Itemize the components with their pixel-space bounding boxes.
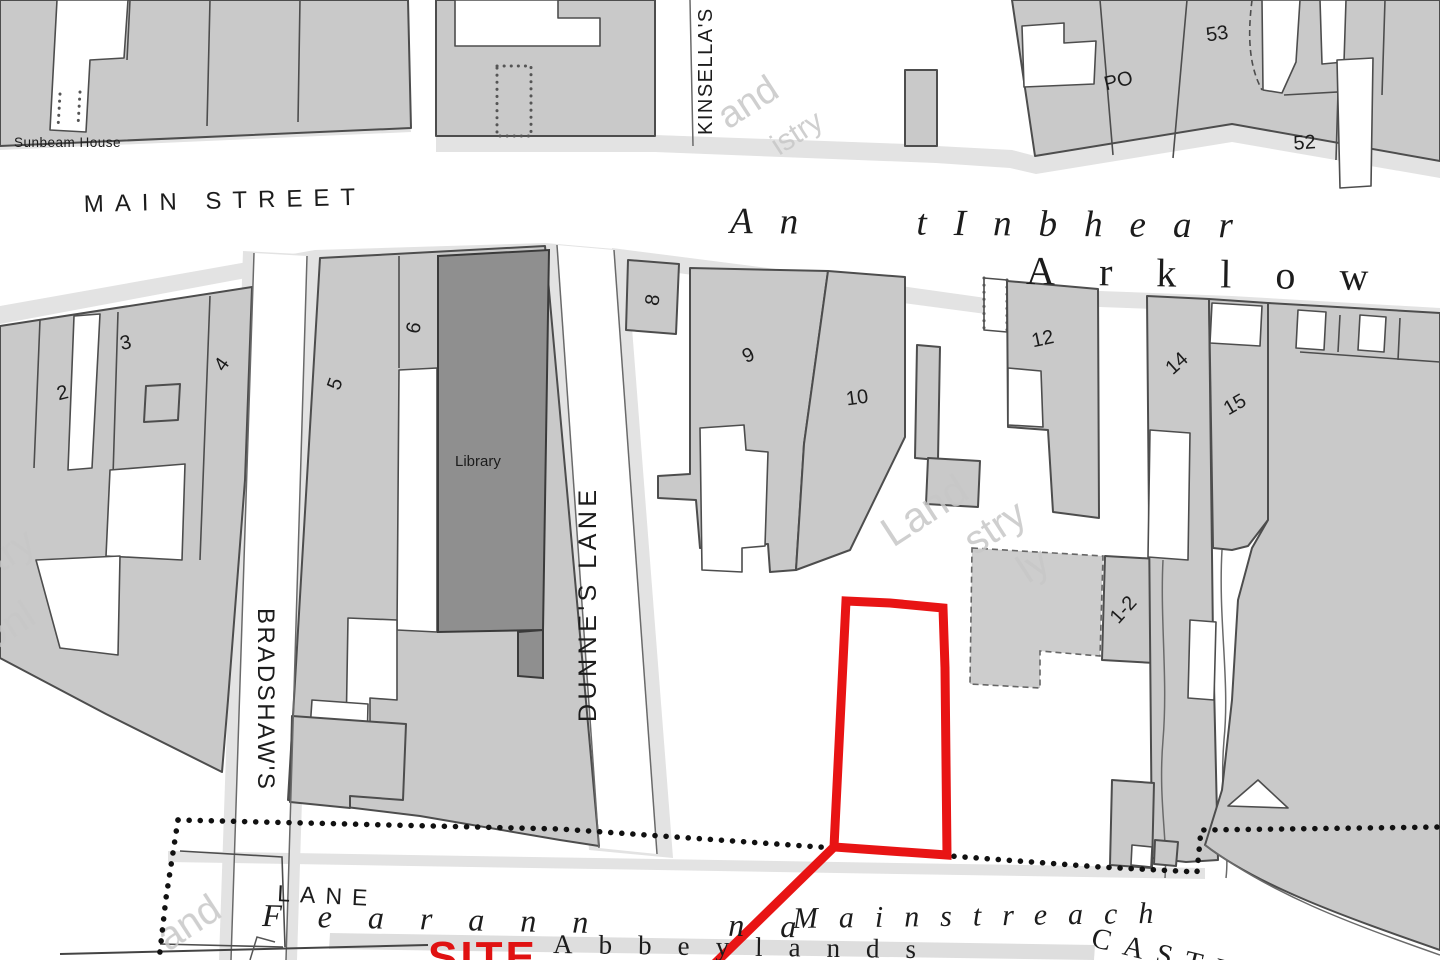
site-outline [834,601,947,855]
building-small-bottom [1154,840,1178,866]
abbeylands-street-edge [168,851,1205,879]
library-building [438,250,549,632]
parcel-white [397,368,437,632]
plot-number-label: 12 [1030,326,1056,352]
kinsellas-lane-curb [690,0,693,146]
parcel-white [1148,430,1190,560]
library-annex [518,630,543,678]
townland-english-label: Abbeylands [553,929,942,960]
building-small [144,384,180,422]
plot-number-label: 10 [845,386,870,411]
parcel-white [106,464,185,560]
building-narrow [915,345,940,460]
dunnes-lane-label: DUNNE'S LANE [574,485,602,722]
site-label: SITE [428,933,538,960]
main-street-label: MAIN STREET [83,184,366,218]
library-label: Library [455,453,501,470]
plot-number-label: 52 [1293,131,1317,154]
parcel-white [1320,0,1346,64]
parcel-white [1210,303,1262,346]
building-small-kinsella [905,70,937,146]
parcel-white [1188,620,1216,700]
kinsellas-lane-label: KINSELLA'S [695,7,717,135]
parcel-white [1131,845,1152,867]
watermark-fragment: and [149,886,229,959]
bradshaws-lane-label: BRADSHAW'S [252,608,279,791]
building-plot-14-strip [1147,296,1218,862]
passage-white [984,278,1007,332]
building-small [290,716,406,808]
castle-street-label: CASTLE [1088,922,1278,960]
land-registry-map: and istry stry Onl Land stry ly and Sunb… [0,0,1440,960]
irish-street-name-label: An tInbhear [727,201,1260,247]
plot-number-label: 53 [1205,22,1230,47]
alley-white [1337,58,1373,188]
town-name-label: Arklow [1026,248,1413,300]
parcel-white [1296,310,1326,350]
sunbeam-house-label: Sunbeam House [14,135,121,150]
parcel-white [1358,315,1386,352]
parcel-white [1008,368,1043,427]
